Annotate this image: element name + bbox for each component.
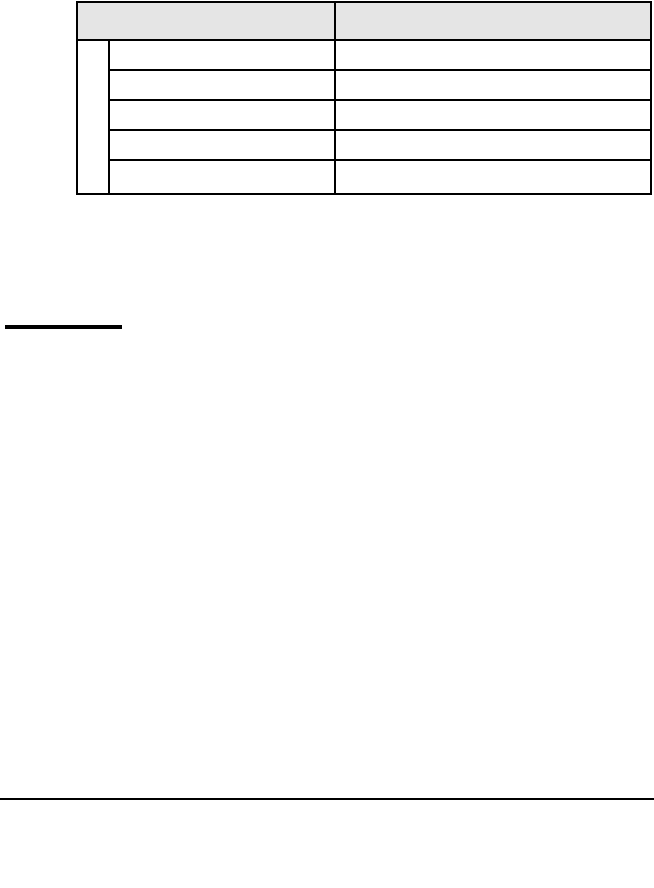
table-cell xyxy=(335,40,651,70)
table-cell xyxy=(335,100,651,130)
table-header-cell-right xyxy=(335,2,651,40)
blank-table xyxy=(76,1,652,195)
table-cell xyxy=(109,40,335,70)
table-row xyxy=(77,130,651,160)
table-row xyxy=(77,160,651,194)
table-cell xyxy=(109,100,335,130)
table-row xyxy=(77,100,651,130)
table-cell xyxy=(335,70,651,100)
table-header-row xyxy=(77,2,651,40)
footer-rule xyxy=(0,798,654,800)
document-page xyxy=(0,0,654,888)
table-cell xyxy=(109,130,335,160)
table-cell xyxy=(335,160,651,194)
table-cell xyxy=(109,160,335,194)
table-cell xyxy=(335,130,651,160)
table-row xyxy=(77,70,651,100)
table-cell xyxy=(109,70,335,100)
table-header-cell-left xyxy=(77,2,335,40)
short-heavy-rule xyxy=(5,325,122,329)
table-row xyxy=(77,40,651,70)
table-side-cell xyxy=(77,40,109,194)
